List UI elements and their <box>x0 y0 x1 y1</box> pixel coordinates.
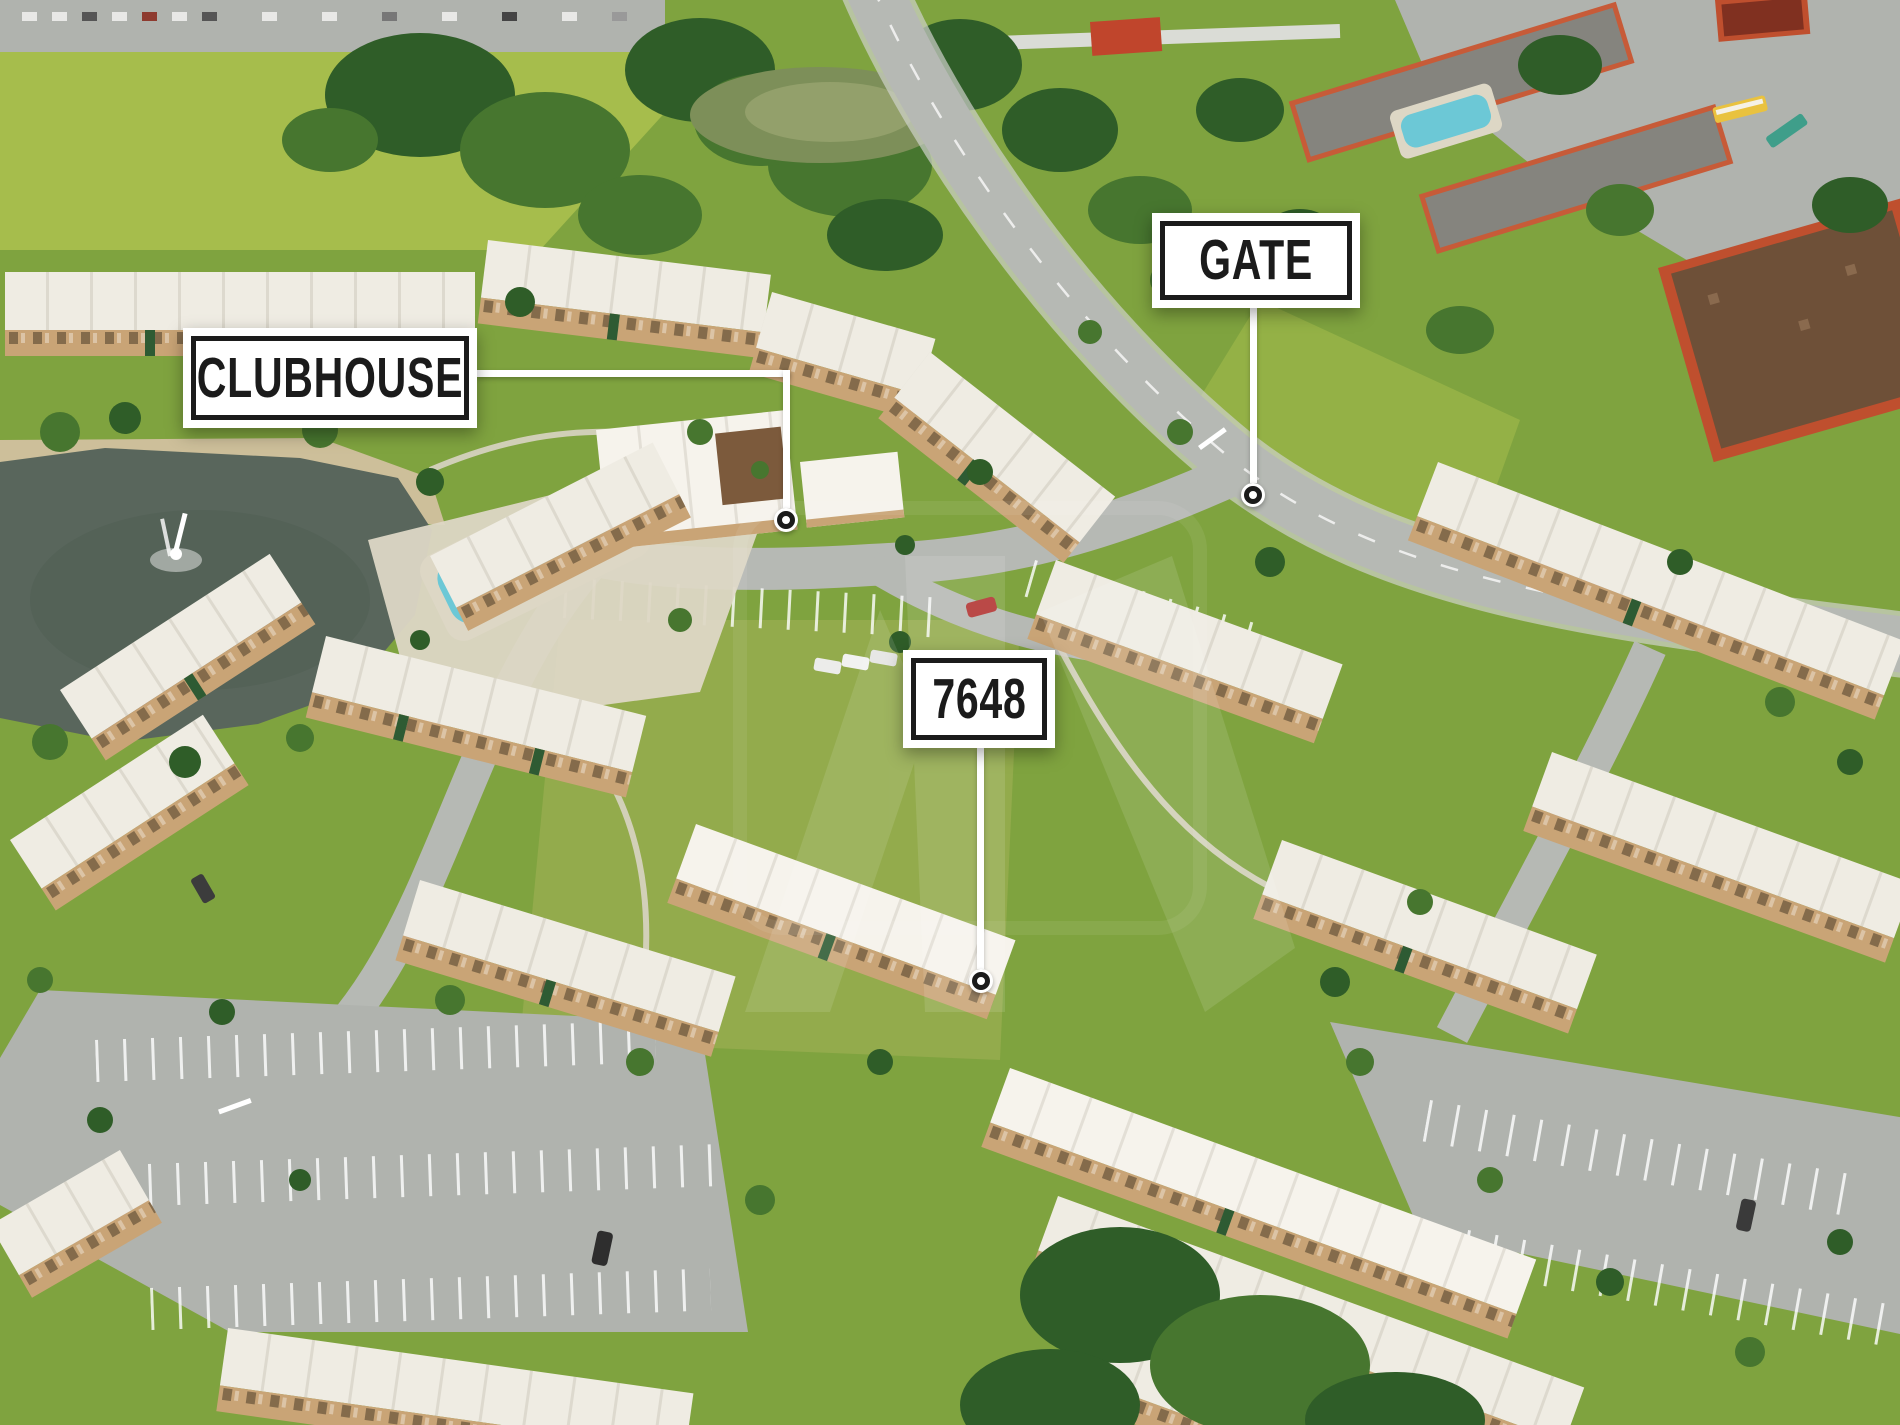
callout-label-clubhouse: CLUBHOUSE <box>183 328 477 428</box>
callout-line-clubhouse-vertical <box>783 370 790 508</box>
unit-7648-label-text: 7648 <box>932 671 1026 728</box>
marker-ring <box>777 511 795 529</box>
marker-ring <box>972 972 990 990</box>
clubhouse-annex <box>800 452 904 528</box>
callout-line-gate <box>1250 308 1257 483</box>
gate-location-marker-icon <box>1241 483 1265 507</box>
aerial-site-photo: CLUBHOUSE GATE 7648 <box>0 0 1900 1425</box>
label-frame: GATE <box>1160 221 1352 300</box>
callout-line-clubhouse-horizontal <box>477 370 790 377</box>
clubhouse-label-text: CLUBHOUSE <box>197 350 463 407</box>
callout-line-7648 <box>977 748 984 969</box>
label-frame: CLUBHOUSE <box>191 336 469 420</box>
gate-label-text: GATE <box>1199 232 1313 289</box>
unit-7648-location-marker-icon <box>969 969 993 993</box>
marker-ring <box>1244 486 1262 504</box>
top-parking-strip <box>0 0 665 52</box>
clubhouse-location-marker-icon <box>774 508 798 532</box>
callout-label-7648: 7648 <box>903 650 1055 748</box>
callout-label-gate: GATE <box>1152 213 1360 308</box>
label-frame: 7648 <box>911 658 1047 740</box>
red-building <box>1090 17 1162 56</box>
